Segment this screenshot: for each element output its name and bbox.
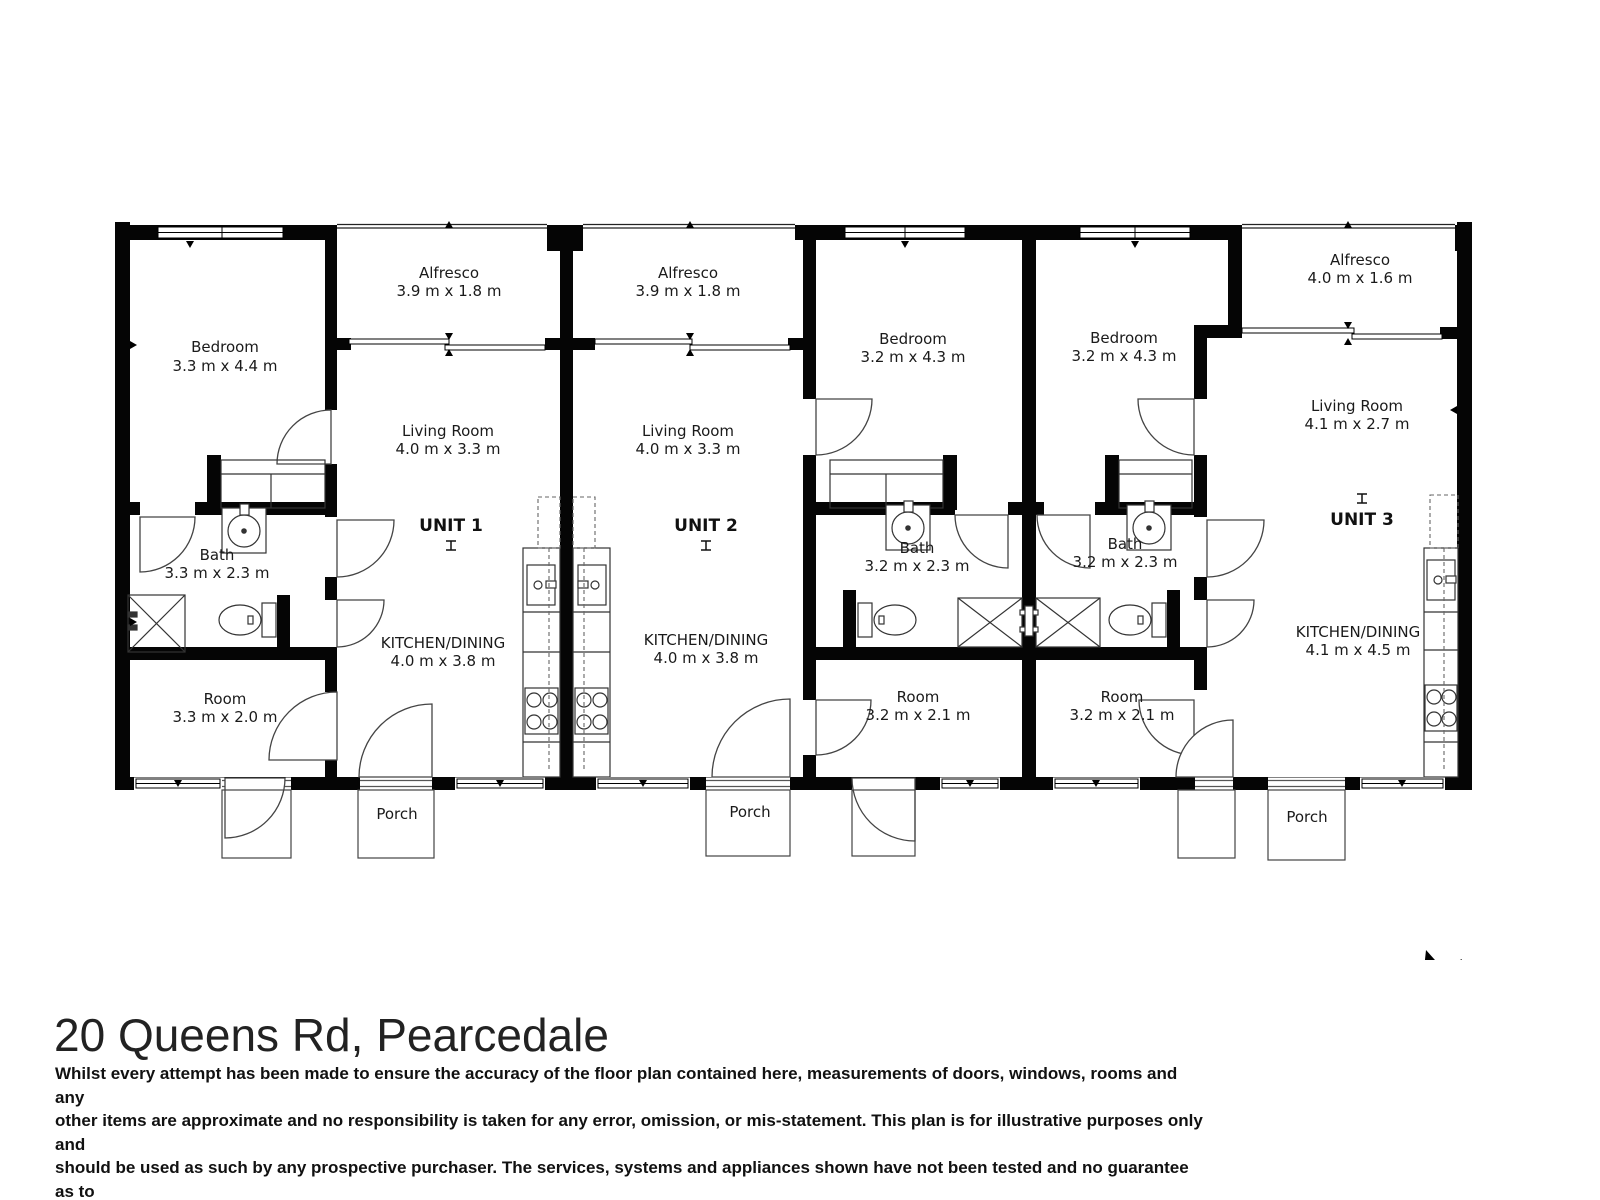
unit2-bedroom-label: Bedroom xyxy=(879,330,947,348)
unit1-title: UNIT 1 xyxy=(419,516,483,536)
unit3-room-dims: 3.2 m x 2.1 m xyxy=(1070,706,1175,724)
unit2-kitchen-dims: 4.0 m x 3.8 m xyxy=(654,649,759,667)
disclaimer-line: other items are approximate and no respo… xyxy=(55,1109,1205,1156)
unit1-bath-dims: 3.3 m x 2.3 m xyxy=(165,564,270,582)
unit2-kitchen-label: KITCHEN/DINING xyxy=(644,631,769,649)
unit2-alfresco-dims: 3.9 m x 1.8 m xyxy=(636,282,741,300)
unit2-bedroom-dims: 3.2 m x 4.3 m xyxy=(861,348,966,366)
unit1-room-label: Room xyxy=(204,690,247,708)
disclaimer-text: Whilst every attempt has been made to en… xyxy=(55,1062,1205,1200)
unit2-title: UNIT 2 xyxy=(674,516,738,536)
unit2-living-dims: 4.0 m x 3.3 m xyxy=(636,440,741,458)
unit3-bedroom-label: Bedroom xyxy=(1090,329,1158,347)
north-arrow: N xyxy=(1418,950,1478,960)
door-swings xyxy=(140,399,1264,841)
unit3-kitchen-dims: 4.1 m x 4.5 m xyxy=(1306,641,1411,659)
unit2-bath-dims: 3.2 m x 2.3 m xyxy=(865,557,970,575)
unit3-living-label: Living Room xyxy=(1311,397,1403,415)
beds xyxy=(221,460,1192,508)
unit1-room-dims: 3.3 m x 2.0 m xyxy=(173,708,278,726)
unit1-living-label: Living Room xyxy=(402,422,494,440)
unit1-alfresco-dims: 3.9 m x 1.8 m xyxy=(397,282,502,300)
unit3-kitchen-label: KITCHEN/DINING xyxy=(1296,623,1421,641)
unit1-alfresco-label: Alfresco xyxy=(419,264,479,282)
north-label: N xyxy=(1438,955,1473,960)
unit1-bedroom-label: Bedroom xyxy=(191,338,259,356)
unit1-living-dims: 4.0 m x 3.3 m xyxy=(396,440,501,458)
disclaimer-line: should be used as such by any prospectiv… xyxy=(55,1156,1205,1200)
unit1-bedroom-dims: 3.3 m x 4.4 m xyxy=(173,357,278,375)
unit3-room-label: Room xyxy=(1101,688,1144,706)
unit3-bath-label: Bath xyxy=(1108,535,1143,553)
unit2-room-label: Room xyxy=(897,688,940,706)
unit3-living-dims: 4.1 m x 2.7 m xyxy=(1305,415,1410,433)
page-title: 20 Queens Rd, Pearcedale xyxy=(54,1008,609,1062)
unit3-alfresco-dims: 4.0 m x 1.6 m xyxy=(1308,269,1413,287)
unit2-alfresco-label: Alfresco xyxy=(658,264,718,282)
unit3-porch-label: Porch xyxy=(1286,808,1327,826)
unit3-bath-dims: 3.2 m x 2.3 m xyxy=(1073,553,1178,571)
unit1-kitchen-dims: 4.0 m x 3.8 m xyxy=(391,652,496,670)
unit3-title: UNIT 3 xyxy=(1330,510,1394,530)
unit1-bath-label: Bath xyxy=(200,546,235,564)
unit1-porch-label: Porch xyxy=(376,805,417,823)
unit3-bedroom-dims: 3.2 m x 4.3 m xyxy=(1072,347,1177,365)
porch-outlines xyxy=(222,790,1345,860)
disclaimer-line: Whilst every attempt has been made to en… xyxy=(55,1062,1205,1109)
floor-plan-page: Bedroom 3.3 m x 4.4 m Alfresco 3.9 m x 1… xyxy=(0,0,1600,1200)
unit3-alfresco-label: Alfresco xyxy=(1330,251,1390,269)
unit2-porch-label: Porch xyxy=(729,803,770,821)
unit1-kitchen-label: KITCHEN/DINING xyxy=(381,634,506,652)
floor-plan-drawing: Bedroom 3.3 m x 4.4 m Alfresco 3.9 m x 1… xyxy=(0,0,1600,960)
unit2-room-dims: 3.2 m x 2.1 m xyxy=(866,706,971,724)
unit2-living-label: Living Room xyxy=(642,422,734,440)
unit2-bath-label: Bath xyxy=(900,539,935,557)
